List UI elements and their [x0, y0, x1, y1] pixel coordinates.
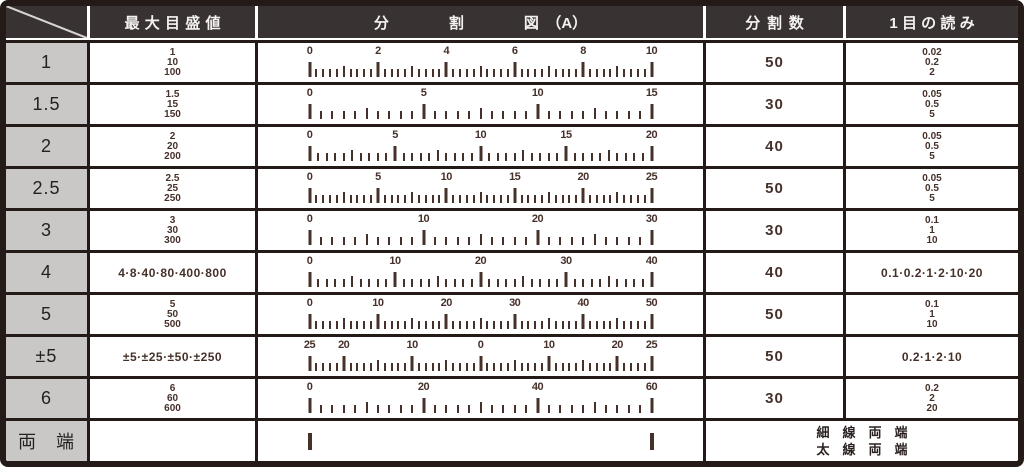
ruler-tick — [571, 405, 573, 413]
ruler-tick — [350, 363, 352, 371]
reading-value: 1 — [929, 226, 935, 236]
ruler-tick — [642, 279, 644, 287]
ruler-tick — [605, 237, 607, 245]
ruler-tick — [377, 237, 379, 245]
ruler-tick — [445, 62, 448, 77]
ruler-tick — [536, 398, 539, 413]
division-count-value: 40 — [765, 138, 784, 155]
ruler-tick — [486, 69, 488, 77]
ruler-number: 20 — [418, 381, 429, 393]
row-label-text: 5 — [41, 304, 52, 325]
ruler-tick — [356, 363, 358, 371]
ruler-number: 20 — [612, 339, 623, 351]
reading-cell: 0.050.55 — [846, 82, 1018, 124]
max-value: 6 — [170, 384, 176, 394]
ruler-tick — [582, 188, 585, 203]
ruler-tick — [473, 321, 475, 329]
ruler-tick — [400, 111, 402, 119]
ruler-number: 0 — [307, 87, 313, 99]
division-count-cell: 50 — [706, 40, 846, 82]
ruler-tick — [594, 234, 596, 245]
max-value: 200 — [164, 152, 181, 162]
ruler-tick — [452, 195, 454, 203]
ruler-tick — [479, 146, 482, 161]
ruler-tick — [582, 62, 585, 77]
reading-value: 0.1 — [925, 216, 939, 226]
max-value: 250 — [164, 194, 181, 204]
ruler-tick — [411, 237, 413, 245]
ruler-tick — [377, 153, 379, 161]
max-values: 4·8·40·80·400·800 — [118, 268, 227, 278]
ruler-tick — [630, 321, 632, 329]
ruler-tick — [329, 321, 331, 329]
header-division-count: 分割数 — [706, 6, 846, 40]
ruler-tick — [548, 192, 550, 203]
ruler-tick — [342, 356, 345, 371]
ruler-tick — [404, 321, 406, 329]
ruler-tick — [491, 405, 493, 413]
ruler-tick — [596, 363, 598, 371]
both-ends-note: 細 線 両 端 太 線 両 端 — [816, 424, 907, 458]
ruler-tick — [555, 69, 557, 77]
ruler-tick — [388, 111, 390, 119]
ruler-number: 30 — [560, 255, 571, 267]
ruler-tick — [497, 153, 499, 161]
row-label-cell: 6 — [6, 376, 90, 418]
ruler-tick — [422, 398, 425, 413]
ruler-tick — [568, 321, 570, 329]
ruler-tick — [521, 363, 523, 371]
max-values-cell: 660600 — [90, 376, 258, 418]
ruler-tick — [391, 195, 393, 203]
ruler-tick — [351, 276, 353, 287]
ruler-tick — [428, 279, 430, 287]
ruler-tick — [507, 363, 509, 371]
ruler-tick — [350, 195, 352, 203]
reading-values: 0.050.55 — [922, 174, 941, 204]
ruler-tick — [568, 363, 570, 371]
ruler-tick — [625, 279, 627, 287]
ruler-tick — [376, 314, 379, 329]
ruler-tick — [513, 62, 516, 77]
ruler-tick — [385, 153, 387, 161]
division-figure-cell: 0510152025 — [258, 166, 706, 208]
ruler-tick — [368, 279, 370, 287]
header-reading: 1目の読み — [846, 6, 1018, 40]
row-label-text: 1.5 — [32, 94, 60, 115]
ruler-tick — [334, 153, 336, 161]
ruler-tick — [331, 111, 333, 119]
ruler-tick — [582, 314, 585, 329]
ruler-tick — [559, 237, 561, 245]
division-figure-cell: 010203040 — [258, 250, 706, 292]
ruler-tick — [633, 279, 635, 287]
row-label-text: 両 端 — [18, 428, 75, 454]
ruler-tick — [370, 321, 372, 329]
max-value: 15 — [167, 100, 178, 110]
reading-value: 5 — [929, 194, 935, 204]
ruler-tick — [317, 279, 319, 287]
ruler-tick — [320, 111, 322, 119]
ruler-tick — [493, 363, 495, 371]
ruler-tick — [425, 69, 427, 77]
ruler-tick — [331, 405, 333, 413]
ruler-tick — [637, 195, 639, 203]
ruler-tick — [562, 195, 564, 203]
division-figure-cell: 0204060 — [258, 376, 706, 418]
ruler-tick — [565, 272, 568, 287]
max-value: 5 — [170, 300, 176, 310]
ruler-tick — [594, 402, 596, 413]
ruler-tick — [473, 363, 475, 371]
ruler-tick — [308, 230, 311, 245]
ruler-tick — [514, 405, 516, 413]
ruler-tick — [370, 69, 372, 77]
ruler-tick — [534, 69, 536, 77]
ruler-tick — [356, 69, 358, 77]
row-label-cell: 2 — [6, 124, 90, 166]
ruler-tick — [468, 237, 470, 245]
max-values: ±5·±25·±50·±250 — [123, 352, 222, 362]
ruler-tick — [322, 69, 324, 77]
ruler-tick — [404, 363, 406, 371]
ruler-tick — [480, 108, 482, 119]
ruler-tick — [454, 153, 456, 161]
ruler-tick — [466, 69, 468, 77]
ruler-tick — [582, 237, 584, 245]
ruler-number: 40 — [646, 255, 657, 267]
ruler-tick — [633, 153, 635, 161]
ruler-tick — [422, 104, 425, 119]
row-label-text: 2.5 — [32, 178, 60, 199]
ruler-tick — [548, 111, 550, 119]
division-figure-cell: 051015 — [258, 82, 706, 124]
ruler-tick — [507, 195, 509, 203]
ruler-tick — [331, 237, 333, 245]
ruler-tick — [445, 153, 447, 161]
ruler-tick — [391, 363, 393, 371]
ruler-tick — [368, 153, 370, 161]
ruler-diagram: 01020304050 — [310, 299, 652, 330]
reading-cell: 0.050.55 — [846, 124, 1018, 166]
ruler-tick — [594, 108, 596, 119]
division-count-cell: 30 — [706, 376, 846, 418]
ruler-diagram: 051015 — [310, 89, 652, 120]
ruler-tick — [630, 195, 632, 203]
ruler-tick — [497, 279, 499, 287]
ruler-number: 10 — [475, 129, 486, 141]
reading-value: 2 — [929, 68, 935, 78]
ruler-tick — [425, 363, 427, 371]
max-values: 110100 — [164, 48, 181, 78]
ruler-tick — [391, 69, 393, 77]
ruler-tick — [605, 111, 607, 119]
ruler-tick — [336, 195, 338, 203]
ruler-tick — [616, 192, 618, 203]
ruler-number: 0 — [478, 339, 484, 351]
ruler-tick — [616, 111, 618, 119]
division-count-value: 30 — [765, 390, 784, 407]
ruler-tick — [422, 230, 425, 245]
ruler-tick — [466, 363, 468, 371]
header-division-figure: 分 割 図 （A） — [258, 6, 706, 40]
division-figure-cell: 2520100102025 — [258, 334, 706, 376]
ruler-tick — [445, 360, 447, 371]
ruler-tick — [457, 111, 459, 119]
ruler-tick — [650, 398, 653, 413]
ruler-tick — [479, 356, 482, 371]
row-label-text: 1 — [41, 52, 52, 73]
ruler-tick — [541, 69, 543, 77]
ruler-tick — [571, 237, 573, 245]
ruler-tick — [539, 279, 541, 287]
ruler-tick — [596, 321, 598, 329]
ruler-tick — [308, 272, 311, 287]
ruler-tick — [539, 153, 541, 161]
ruler-tick — [471, 153, 473, 161]
division-figure-cell: 01020304050 — [258, 292, 706, 334]
max-value: 3 — [170, 216, 176, 226]
ruler-tick — [445, 111, 447, 119]
ruler-tick — [334, 279, 336, 287]
ruler-tick — [428, 153, 430, 161]
reading-values: 0.1·0.2·1·2·10·20 — [881, 268, 983, 278]
reading-values: 0.020.22 — [922, 48, 941, 78]
ruler-tick — [568, 69, 570, 77]
ruler-tick — [457, 237, 459, 245]
graduation-spec-table: 最大目盛値 分 割 図 （A） 分割数 1目の読み 11101000246810… — [0, 0, 1024, 467]
division-figure-cell: 05101520 — [258, 124, 706, 166]
division-count-cell: 50 — [706, 166, 846, 208]
ruler-tick — [366, 108, 368, 119]
ruler-number: 10 — [372, 297, 383, 309]
ruler-tick — [548, 405, 550, 413]
reading-cell: 0.1·0.2·1·2·10·20 — [846, 250, 1018, 292]
division-figure-cell: 0246810 — [258, 40, 706, 82]
max-values-cell: 330300 — [90, 208, 258, 250]
ruler-number: 30 — [646, 213, 657, 225]
ruler-number: 0 — [307, 213, 313, 225]
division-count-value: 50 — [765, 54, 784, 71]
ruler-tick — [425, 321, 427, 329]
ruler-tick — [639, 237, 641, 245]
ruler-number: 20 — [441, 297, 452, 309]
reading-value: 0.2 — [925, 384, 939, 394]
ruler-number: 5 — [375, 171, 381, 183]
ruler-tick — [403, 153, 405, 161]
max-value: 500 — [164, 320, 181, 330]
ruler-tick — [320, 405, 322, 413]
ruler-tick — [514, 153, 516, 161]
ruler-tick — [628, 111, 630, 119]
ruler-tick — [582, 279, 584, 287]
ruler-tick — [527, 69, 529, 77]
max-value: 25 — [167, 184, 178, 194]
row-label-text: ±5 — [36, 346, 58, 367]
ruler-tick — [650, 104, 653, 119]
ruler-tick — [616, 237, 618, 245]
ruler-tick — [308, 398, 311, 413]
ruler-tick — [336, 69, 338, 77]
ruler-number: 25 — [304, 339, 315, 351]
ruler-number: 0 — [307, 381, 313, 393]
ruler-tick — [459, 69, 461, 77]
ruler-tick — [343, 153, 345, 161]
ruler-tick — [650, 62, 653, 77]
ruler-tick — [459, 363, 461, 371]
ruler-number: 60 — [646, 381, 657, 393]
max-value: 1 — [170, 48, 176, 58]
reading-value: 0.2·1·2·10 — [902, 352, 962, 362]
ruler-tick — [639, 111, 641, 119]
ruler-tick — [625, 153, 627, 161]
ruler-tick — [609, 363, 611, 371]
ruler-tick — [568, 195, 570, 203]
ruler-tick — [582, 405, 584, 413]
ruler-tick — [548, 66, 550, 77]
ruler-tick — [480, 402, 482, 413]
ruler-tick — [603, 69, 605, 77]
ruler-tick — [462, 153, 464, 161]
ruler-tick — [377, 360, 379, 371]
ruler-number: 50 — [646, 297, 657, 309]
ruler-tick — [315, 195, 317, 203]
max-values-cell: 220200 — [90, 124, 258, 166]
ruler-tick — [438, 195, 440, 203]
ruler-tick — [525, 111, 527, 119]
ruler-tick — [514, 111, 516, 119]
ruler-tick — [403, 279, 405, 287]
max-values: 220200 — [164, 132, 181, 162]
ruler-tick — [438, 321, 440, 329]
ruler-tick — [434, 237, 436, 245]
max-values-cell-empty — [90, 418, 258, 461]
ruler-tick — [459, 195, 461, 203]
ruler-tick — [608, 150, 610, 161]
note-line: 細 線 両 端 — [816, 424, 907, 441]
ruler-tick — [547, 356, 550, 371]
ruler-tick — [609, 69, 611, 77]
ruler-tick — [616, 153, 618, 161]
row-label-text: 4 — [41, 262, 52, 283]
max-value: 60 — [167, 394, 178, 404]
ruler-tick — [491, 111, 493, 119]
ruler-tick — [628, 405, 630, 413]
reading-cell: 0.020.22 — [846, 40, 1018, 82]
reading-value: 20 — [926, 404, 937, 414]
ruler-tick — [616, 279, 618, 287]
max-value: 4·8·40·80·400·800 — [118, 268, 227, 278]
ruler-tick — [608, 276, 610, 287]
ruler-tick — [502, 237, 504, 245]
header-max-scale: 最大目盛値 — [90, 6, 258, 40]
ruler-tick — [384, 321, 386, 329]
ruler-tick — [384, 363, 386, 371]
ruler-tick — [555, 363, 557, 371]
ruler-tick — [637, 363, 639, 371]
ruler-tick — [565, 146, 568, 161]
ruler-tick — [363, 363, 365, 371]
ruler-tick — [603, 321, 605, 329]
ruler-tick — [616, 318, 618, 329]
ruler-tick — [575, 69, 577, 77]
ruler-tick — [575, 363, 577, 371]
ruler-tick — [445, 405, 447, 413]
ruler-tick — [623, 69, 625, 77]
ruler-tick — [521, 69, 523, 77]
ruler-tick — [491, 237, 493, 245]
ruler-tick — [343, 279, 345, 287]
ruler-tick — [388, 237, 390, 245]
ruler-tick — [650, 272, 653, 287]
division-count-cell: 40 — [706, 124, 846, 166]
ruler-tick — [425, 195, 427, 203]
reading-value: 0.5 — [925, 100, 939, 110]
ruler-tick — [457, 405, 459, 413]
ruler-tick — [454, 279, 456, 287]
end-mark-right — [650, 433, 654, 450]
ruler-tick — [452, 69, 454, 77]
ruler-tick — [366, 234, 368, 245]
ruler-tick — [336, 321, 338, 329]
ruler-tick — [556, 279, 558, 287]
ruler-number: 15 — [646, 87, 657, 99]
ruler-number: 40 — [532, 381, 543, 393]
ruler-tick — [637, 321, 639, 329]
ruler-tick — [486, 195, 488, 203]
reading-value: 0.1·0.2·1·2·10·20 — [881, 268, 983, 278]
ruler-tick — [315, 69, 317, 77]
ruler-tick — [394, 146, 397, 161]
reading-value: 0.02 — [922, 48, 941, 58]
reading-cell: 0.050.55 — [846, 166, 1018, 208]
ruler-tick — [527, 363, 529, 371]
max-value: 150 — [164, 110, 181, 120]
division-count-value: 50 — [765, 180, 784, 197]
division-count-value: 50 — [765, 348, 784, 365]
ruler-number: 20 — [577, 171, 588, 183]
row-label-text: 2 — [41, 136, 52, 157]
ruler-tick — [411, 279, 413, 287]
ruler-tick — [531, 153, 533, 161]
ruler-tick — [548, 279, 550, 287]
ruler-tick — [630, 69, 632, 77]
ruler-tick — [437, 150, 439, 161]
ruler-tick — [534, 363, 536, 371]
ruler-tick — [411, 405, 413, 413]
ruler-tick — [350, 321, 352, 329]
ruler-tick — [488, 279, 490, 287]
ruler-tick — [591, 279, 593, 287]
ruler-number: 10 — [418, 213, 429, 225]
ruler-diagram: 05101520 — [310, 131, 652, 162]
ruler-tick — [363, 69, 365, 77]
ruler-tick — [589, 195, 591, 203]
division-count-cell: 50 — [706, 292, 846, 334]
row-label-cell: 2.5 — [6, 166, 90, 208]
ruler-diagram: 0204060 — [310, 383, 652, 414]
ruler-tick — [644, 363, 646, 371]
corner-cell — [6, 6, 90, 40]
ruler-tick — [582, 153, 584, 161]
ruler-tick — [351, 150, 353, 161]
division-count-value: 30 — [765, 96, 784, 113]
ruler-tick — [513, 188, 516, 203]
ruler-tick — [493, 195, 495, 203]
note-line: 太 線 両 端 — [816, 441, 907, 458]
max-value: 100 — [164, 68, 181, 78]
max-values: 2.525250 — [164, 174, 181, 204]
